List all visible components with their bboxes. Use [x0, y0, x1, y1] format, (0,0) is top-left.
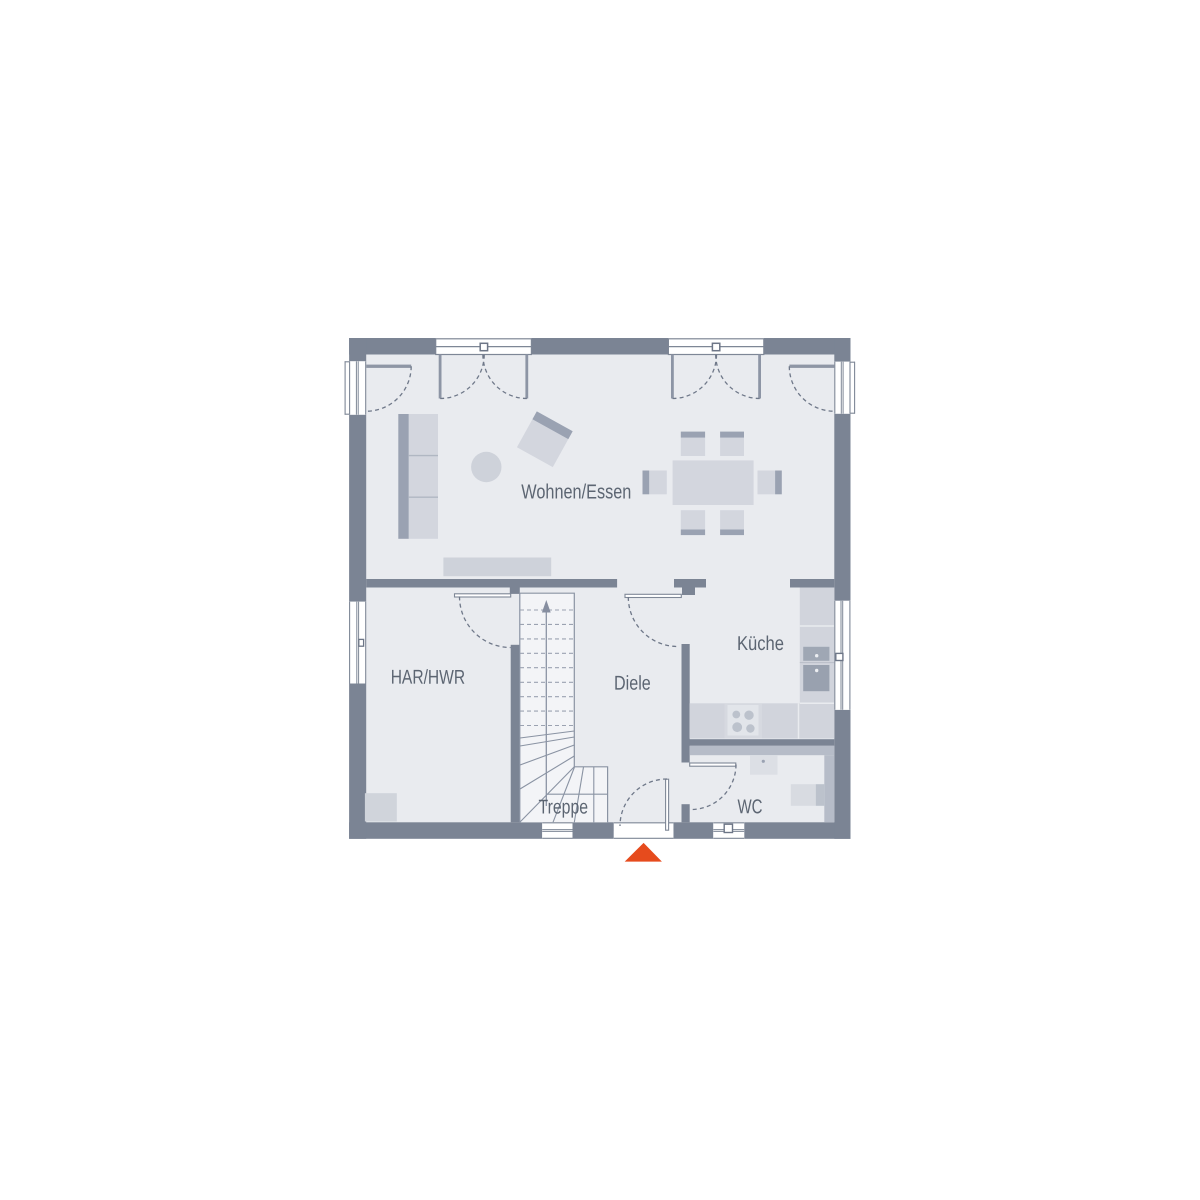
svg-text:HAR/HWR: HAR/HWR — [391, 667, 465, 689]
svg-text:Wohnen/Essen: Wohnen/Essen — [521, 482, 631, 504]
svg-text:Küche: Küche — [737, 633, 784, 655]
svg-text:WC: WC — [737, 796, 762, 818]
svg-text:Treppe: Treppe — [539, 796, 589, 818]
svg-text:Diele: Diele — [614, 673, 651, 695]
